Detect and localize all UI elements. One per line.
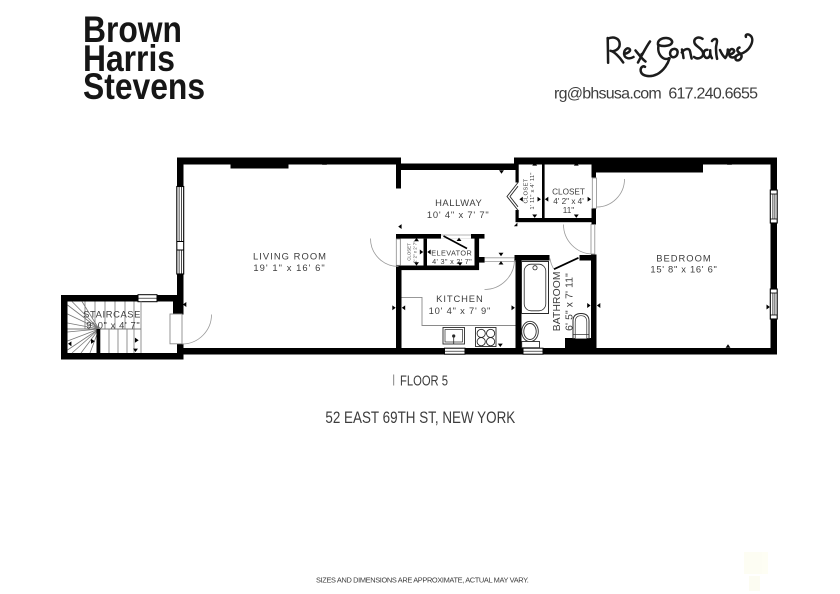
svg-text:LIVING ROOM: LIVING ROOM: [253, 251, 327, 262]
svg-text:10' 4" x 7' 9": 10' 4" x 7' 9": [429, 305, 492, 316]
svg-text:4' 3" x 2' 7": 4' 3" x 2' 7": [432, 257, 472, 266]
svg-text:HALLWAY: HALLWAY: [435, 197, 482, 208]
svg-text:STAIRCASE: STAIRCASE: [83, 308, 141, 319]
svg-text:2' 2" x 2' 7": 2' 2" x 2' 7": [413, 241, 418, 263]
svg-text:BATHROOM: BATHROOM: [552, 271, 563, 331]
svg-text:CLOSET: CLOSET: [552, 187, 585, 196]
svg-text:SIZES AND DIMENSIONS ARE APPRO: SIZES AND DIMENSIONS ARE APPROXIMATE, AC…: [316, 576, 529, 585]
svg-text:KITCHEN: KITCHEN: [436, 293, 483, 304]
svg-text:CLOSET: CLOSET: [523, 178, 529, 203]
svg-text:BEDROOM: BEDROOM: [656, 253, 711, 264]
svg-text:19' 1" x 16' 6": 19' 1" x 16' 6": [253, 262, 325, 273]
svg-text:10' 4" x 7' 7": 10' 4" x 7' 7": [427, 209, 490, 220]
svg-text:ELEVATOR: ELEVATOR: [431, 248, 472, 257]
svg-text:52 EAST 69TH ST, NEW YORK: 52 EAST 69TH ST, NEW YORK: [325, 409, 515, 428]
svg-text:1' 11" x 4' 11": 1' 11" x 4' 11": [530, 172, 536, 209]
svg-text:9' 0" x 4' 7": 9' 0" x 4' 7": [86, 319, 140, 330]
svg-text:CLOSET: CLOSET: [407, 243, 412, 261]
svg-text:6' 5" x 7' 11": 6' 5" x 7' 11": [564, 273, 575, 331]
svg-text:rg@bhsusa.com 617.240.6655: rg@bhsusa.com 617.240.6655: [554, 86, 758, 103]
svg-text:15' 8" x 16' 6": 15' 8" x 16' 6": [650, 264, 717, 275]
svg-text:11": 11": [563, 206, 574, 215]
svg-text:FLOOR 5: FLOOR 5: [400, 372, 448, 389]
